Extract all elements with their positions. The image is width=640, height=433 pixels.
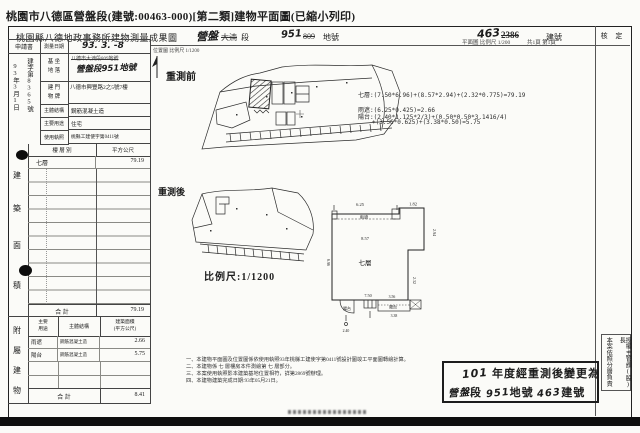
floor-row-area: 79.19 bbox=[96, 156, 150, 169]
note-line: 四、本建物建築完成日期:93年05月21日。 bbox=[186, 378, 438, 385]
stamp-year-handwritten: 101 bbox=[461, 366, 488, 381]
site-label-line1: 基 坐 bbox=[48, 58, 60, 67]
attached-empty-cell bbox=[28, 375, 59, 389]
plan-balcony-right-label: 陽台 bbox=[389, 304, 397, 310]
side-char: 附 bbox=[13, 325, 21, 336]
floor-area-total-value: 79.19 bbox=[96, 304, 150, 316]
attached-side-strip: 附 屬 建 物 bbox=[8, 316, 29, 404]
cadastral-map-before bbox=[196, 52, 418, 152]
note-line: 一、本建物平面圖及位置圖係依使用執照93年桃縣工建使字第0411號設計圖竣工平面… bbox=[186, 357, 438, 364]
stamp-section-handwritten: 營盤 bbox=[448, 383, 471, 399]
attached-empty-cell bbox=[100, 362, 150, 376]
floor-area-side-strip: 建 築 面 積 bbox=[8, 144, 29, 316]
note-line: 二、本建物係 七 層樓房本件測繪第 七 層部分。 bbox=[186, 364, 438, 371]
side-char: 面 bbox=[13, 240, 21, 251]
address-value: 八德市興豐路2之5號7樓 bbox=[68, 81, 150, 104]
attached-row-structure: 鋼筋混凝土造 bbox=[58, 349, 100, 362]
land-number-handwritten: 951 bbox=[281, 28, 303, 40]
license-label: 使用執照 bbox=[40, 130, 69, 145]
side-char: 建 bbox=[13, 365, 21, 376]
stamp-section-label: 段 bbox=[470, 387, 482, 399]
use-label: 主要用途 bbox=[40, 117, 69, 131]
floor-plan-drawing: 6.25 1.82 雨遮 2.94 6.96 8.57 七層 2.32 7.50… bbox=[320, 197, 442, 343]
cadastral-map-after bbox=[186, 184, 326, 272]
floor-row-name: 七層 bbox=[28, 156, 96, 169]
attached-use-header-line2: 用途 bbox=[38, 326, 48, 333]
side-char: 積 bbox=[13, 280, 21, 291]
address-label-line2: 物 牌 bbox=[48, 93, 60, 102]
attached-area-header-line2: (平方公尺) bbox=[114, 326, 136, 333]
attached-structure-header: 主體結構 bbox=[58, 316, 101, 337]
attached-empty-cell bbox=[58, 375, 101, 389]
punch-hole bbox=[16, 150, 28, 160]
formula-floor7: 七層:(7.50*6.96)+(8.57*2.94)+(2.32*0.775)=… bbox=[358, 90, 525, 99]
site-label-line2: 地 落 bbox=[48, 67, 60, 76]
header-divider bbox=[150, 45, 630, 46]
application-doc-number: 建字第8365號 bbox=[25, 58, 32, 112]
plan-dim-top-right: 1.82 bbox=[409, 202, 417, 207]
scan-edge-bar bbox=[0, 417, 640, 426]
use-value: 住宅 bbox=[68, 117, 150, 130]
license-value: 桃縣工建使字第0411號 bbox=[68, 130, 150, 144]
plan-balcony-left-label: 陽台 bbox=[343, 305, 351, 311]
plan-canopy-label: 雨遮 bbox=[360, 214, 368, 221]
structure-label: 主體結構 bbox=[40, 104, 69, 118]
site-cell: 八德市大湳段809地號 營盤段951地號 bbox=[68, 53, 150, 82]
section-name-old: 大湳 bbox=[221, 32, 237, 43]
notes-block: 一、本建物平面圖及位置圖係依使用執照93年桃縣工建使字第0411號設計圖竣工平面… bbox=[186, 357, 438, 385]
plan-dim-balcony-right-2: 3.38 bbox=[391, 314, 398, 318]
attached-row-structure: 鋼筋混凝土造 bbox=[58, 336, 100, 349]
north-arrow-icon bbox=[150, 54, 164, 80]
land-number-old: 809 bbox=[303, 32, 315, 41]
map-after-scale-label: 比例尺:1/1200 bbox=[204, 268, 275, 283]
left-form-panel: 申請書 建字第8365號 93年3月1日 測量日期 93. 3. -8 基 坐 … bbox=[8, 39, 151, 404]
delegation-left-column: 本案依照分層負責 bbox=[605, 337, 611, 387]
side-char: 屬 bbox=[13, 345, 21, 356]
survey-date-label: 測量日期 bbox=[40, 40, 69, 54]
attached-use-header-line1: 主要 bbox=[38, 319, 48, 326]
attached-area-header: 建築面積 (平方公尺) bbox=[100, 316, 150, 337]
attached-area-header-line1: 建築面積 bbox=[115, 319, 134, 326]
land-number-label: 地號 bbox=[323, 32, 339, 43]
illegible-smudge bbox=[288, 410, 366, 414]
attached-use-header: 主要 用途 bbox=[28, 316, 59, 337]
plan-floor-label: 七層 bbox=[359, 258, 372, 267]
attached-empty-cell bbox=[28, 362, 59, 376]
attached-empty-cell bbox=[58, 362, 101, 376]
plan-dim-balcony-right-1: 3.56 bbox=[389, 295, 396, 299]
application-header: 申請書 bbox=[8, 40, 41, 54]
plan-dim-top: 6.25 bbox=[356, 202, 365, 207]
scanned-building-survey-document: { "colors": {"paper": "#fbfbf8", "ink": … bbox=[0, 0, 640, 433]
side-char: 建 bbox=[13, 170, 21, 181]
formula-balcony-2: +(3.56*0.625)+(3.38*0.50)=5.75 bbox=[372, 119, 480, 126]
address-label: 建 門 物 牌 bbox=[40, 81, 69, 105]
floor-area-column-rule bbox=[96, 169, 97, 304]
stamp-line1-text: 年度經重測後變更為 bbox=[492, 368, 600, 380]
delegation-stamp: 授權主管課(股)長 本案依照分層負責 bbox=[601, 334, 631, 391]
note-line: 三、本案使用執照影本建築基地位置相符，詳第2869號辦理。 bbox=[186, 371, 438, 378]
resurvey-change-stamp: 101年度經重測後變更為 營盤段 951地號 463建號 bbox=[442, 361, 599, 403]
site-label: 基 坐 地 落 bbox=[40, 53, 69, 82]
stamp-building-handwritten: 463 bbox=[537, 387, 562, 400]
map-before-label: 重測前 bbox=[166, 68, 196, 83]
plan-dim-inner: 8.57 bbox=[361, 236, 370, 241]
stamp-land-handwritten: 951 bbox=[485, 387, 510, 400]
section-name-handwritten: 營盤 bbox=[196, 27, 219, 44]
structure-value: 鋼筋混凝土造 bbox=[68, 104, 150, 117]
attached-row-area: 5.75 bbox=[100, 349, 150, 362]
section-suffix: 段 bbox=[241, 32, 249, 43]
page-title: 桃園市八德區營盤段(建號:00463-000)[第二類]建物平面圖(已縮小列印) bbox=[6, 8, 626, 24]
attached-empty-cell bbox=[100, 375, 150, 389]
site-new-value: 營盤段951地號 bbox=[76, 61, 137, 75]
address-label-line1: 建 門 bbox=[48, 84, 60, 93]
plan-dim-left: 6.96 bbox=[326, 259, 331, 266]
delegation-right-column: 授權主管課(股)長 bbox=[618, 337, 630, 390]
plan-dim-bottom: 7.50 bbox=[364, 293, 371, 298]
side-char: 物 bbox=[13, 385, 21, 396]
attached-row-use: 雨遮 bbox=[28, 336, 58, 349]
survey-date-value: 93. 3. -8 bbox=[82, 41, 124, 51]
survey-date-cell: 93. 3. -8 bbox=[68, 40, 150, 54]
attached-row-use: 陽台 bbox=[28, 349, 58, 362]
approval-cell: 核 定 bbox=[596, 27, 630, 45]
location-map-caption: 位置圖 比例尺 1/1200 bbox=[153, 47, 199, 54]
floor-area-dotted-rule bbox=[46, 169, 47, 304]
attached-total-value: 8.41 bbox=[100, 388, 150, 403]
stamp-building-label: 建號 bbox=[561, 387, 585, 399]
attached-total-label: 合 計 bbox=[28, 388, 101, 404]
plan-dim-step: 2.32 bbox=[412, 277, 417, 284]
application-date: 93年3月1日 bbox=[11, 63, 18, 111]
plan-dim-right: 2.94 bbox=[432, 229, 437, 236]
map-after-label: 重測後 bbox=[158, 185, 185, 198]
side-char: 築 bbox=[13, 203, 21, 214]
attached-row-area: 2.66 bbox=[100, 336, 150, 349]
plan-dim-balcony-left: 2.40 bbox=[343, 329, 350, 333]
application-receipt-cell: 建字第8365號 93年3月1日 bbox=[8, 53, 41, 144]
stamp-land-label: 地號 bbox=[510, 387, 534, 399]
right-column-divider bbox=[595, 26, 596, 416]
